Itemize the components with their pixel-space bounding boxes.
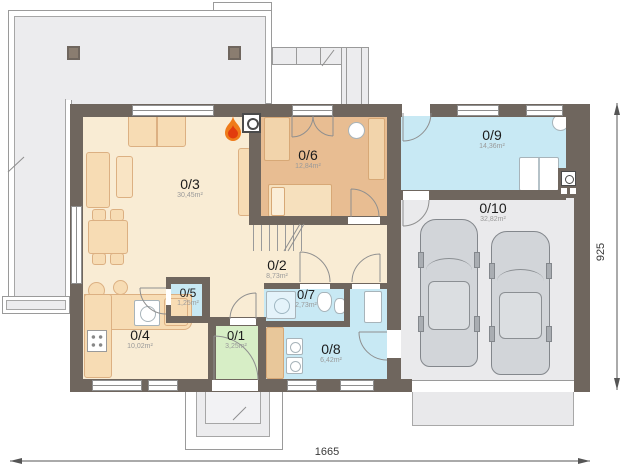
car-wheel xyxy=(489,326,495,342)
room-label-0-8: 0/8 6,42m² xyxy=(320,342,342,364)
stool xyxy=(113,280,128,295)
fireplace-stove xyxy=(242,113,261,133)
terrace-left-floor xyxy=(14,99,66,298)
room-area: 30,45m² xyxy=(177,192,203,199)
coffee-table xyxy=(116,156,133,198)
room-label-0-4: 0/4 10,02m² xyxy=(127,328,153,350)
wall xyxy=(166,277,171,289)
terrace-post-left xyxy=(67,46,80,60)
car-windshield xyxy=(497,269,544,293)
dimension-width: 1665 xyxy=(315,446,339,458)
front-door-gap xyxy=(212,380,258,391)
room-number: 0/5 xyxy=(177,287,199,300)
terrace-post-right xyxy=(228,46,241,60)
window xyxy=(92,380,142,391)
window xyxy=(340,380,374,391)
room-area: 2,73m² xyxy=(295,302,317,309)
window xyxy=(71,206,82,284)
wall xyxy=(574,196,590,392)
room-number: 0/7 xyxy=(295,288,317,302)
car-wheel xyxy=(418,252,424,268)
floor-plan: 0/3 30,45m² 0/6 12,84m² 0/9 14,36m² 0/10… xyxy=(0,0,625,474)
entry-porch xyxy=(185,391,283,450)
door-gap xyxy=(348,217,380,224)
side-steps xyxy=(341,47,369,105)
terrace-step-floor xyxy=(6,300,66,310)
room-number: 0/8 xyxy=(320,342,342,357)
wall xyxy=(344,283,350,327)
room-label-0-1: 0/1 3,25m² xyxy=(225,329,247,350)
cooktop xyxy=(87,330,107,352)
room-number: 0/1 xyxy=(225,329,247,343)
room-label-0-5: 0/5 1,25m² xyxy=(177,287,199,307)
shower-drain xyxy=(274,298,290,314)
window xyxy=(287,380,317,391)
garage-apron xyxy=(412,392,574,426)
wardrobe xyxy=(264,117,290,161)
loveseat xyxy=(128,114,186,147)
wall xyxy=(202,277,210,323)
car-wheel xyxy=(474,252,480,268)
boiler xyxy=(561,171,576,186)
room-area: 3,25m² xyxy=(225,343,247,350)
window xyxy=(526,105,563,116)
pillow xyxy=(271,187,285,216)
room-number: 0/6 xyxy=(295,148,321,163)
terrace-door-window xyxy=(292,105,333,116)
window xyxy=(457,105,499,116)
wall xyxy=(166,305,171,323)
fireplace-flame-icon xyxy=(224,116,242,142)
side-steps-walk xyxy=(272,47,347,65)
terrace-left xyxy=(8,100,72,299)
kitchen-sink xyxy=(134,300,160,326)
car-icon xyxy=(420,219,478,367)
room-number: 0/9 xyxy=(479,128,505,143)
room-area: 6,42m² xyxy=(320,357,342,364)
desk xyxy=(368,118,385,180)
room-label-0-7: 0/7 2,73m² xyxy=(295,288,317,309)
entry-porch-step2 xyxy=(205,392,261,424)
side-door-gap xyxy=(402,105,430,116)
closet xyxy=(266,327,284,379)
wall xyxy=(264,321,350,327)
dining-chair xyxy=(92,253,106,265)
room-label-0-3: 0/3 30,45m² xyxy=(177,177,203,199)
washbasin xyxy=(348,122,365,139)
room-label-0-9: 0/9 14,36m² xyxy=(479,128,505,150)
door-gap xyxy=(166,289,171,305)
meter xyxy=(570,188,576,194)
room-area: 14,36m² xyxy=(479,143,505,150)
terrace-top-floor xyxy=(14,16,266,104)
cabinet xyxy=(519,157,559,191)
meter xyxy=(561,188,567,194)
door-gap xyxy=(230,318,256,325)
room-label-0-2: 0/2 8,73m² xyxy=(266,258,288,280)
side-steps-stringers xyxy=(346,48,362,104)
room-area: 8,73m² xyxy=(266,273,288,280)
toilet xyxy=(317,292,332,312)
car-wheel xyxy=(489,263,495,279)
dimension-height: 925 xyxy=(595,243,607,261)
room-area: 1,25m² xyxy=(177,300,199,307)
room-label-0-6: 0/6 12,84m² xyxy=(295,148,321,170)
stairs xyxy=(253,224,303,251)
window xyxy=(148,380,178,391)
washer-door xyxy=(290,342,301,353)
car-icon xyxy=(491,231,550,375)
room-area: 32,82m² xyxy=(479,216,506,223)
dryer-door xyxy=(290,361,301,372)
car-roof xyxy=(428,281,470,330)
window xyxy=(132,105,214,116)
door-gap xyxy=(352,284,380,289)
utility-sink xyxy=(364,291,382,323)
sofa xyxy=(86,152,110,208)
terrace-step xyxy=(2,296,70,314)
room-label-0-10: 0/10 32,82m² xyxy=(479,201,506,223)
dining-chair xyxy=(110,253,124,265)
car-wheel xyxy=(474,316,480,332)
dining-table xyxy=(88,220,128,254)
room-number: 0/3 xyxy=(177,177,203,192)
car-wheel xyxy=(546,326,552,342)
car-windshield xyxy=(426,258,472,282)
dryer xyxy=(286,357,303,374)
door-gap xyxy=(403,191,429,200)
room-area: 10,02m² xyxy=(127,343,153,350)
room-area: 12,84m² xyxy=(295,163,321,170)
bed xyxy=(268,184,332,217)
room-number: 0/4 xyxy=(127,328,153,343)
room-number: 0/2 xyxy=(266,258,288,273)
sink-basin xyxy=(140,306,156,322)
wall xyxy=(208,317,216,379)
garage-door-opening xyxy=(412,380,574,391)
door-gap xyxy=(387,330,401,358)
washer xyxy=(286,338,303,355)
shower xyxy=(266,291,296,319)
car-wheel xyxy=(546,263,552,279)
room-number: 0/10 xyxy=(479,201,506,216)
wall xyxy=(249,117,261,224)
car-roof xyxy=(499,292,542,339)
car-wheel xyxy=(418,316,424,332)
